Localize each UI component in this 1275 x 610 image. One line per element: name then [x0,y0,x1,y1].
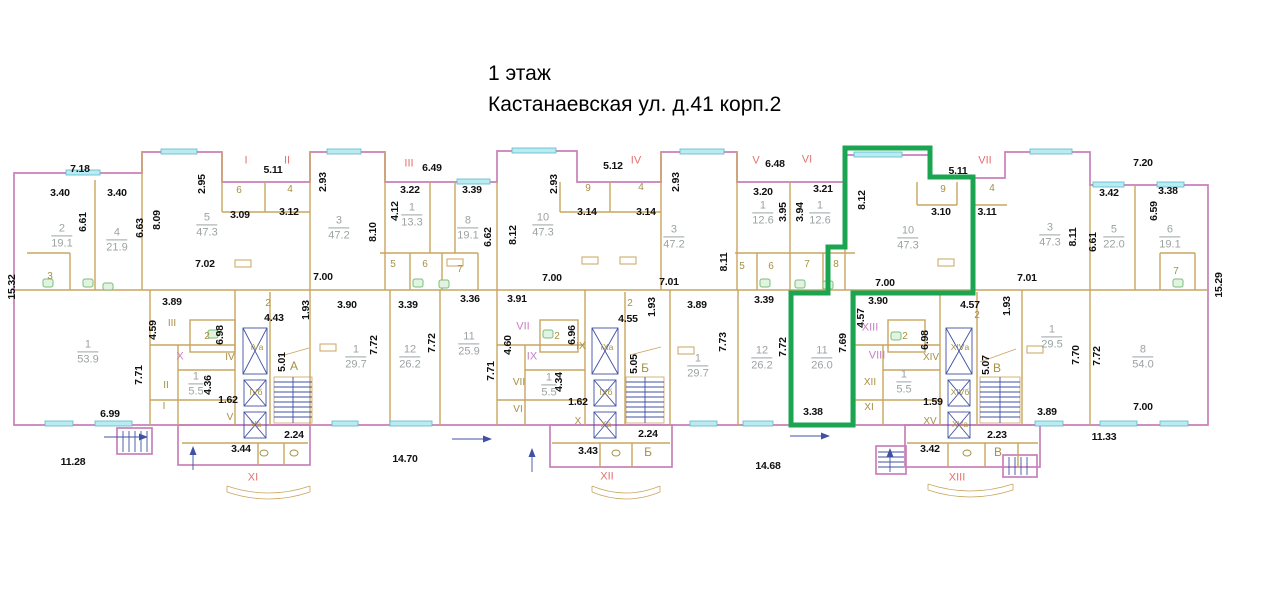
dimension-label: 14.68 [755,461,780,472]
apartment-roman-label: X [176,352,183,363]
dimension-label: 7.00 [875,278,895,289]
dimension-label: 2.93 [549,174,560,194]
room-label: 1126.0 [811,344,832,371]
room-label: 129.5 [1041,323,1062,350]
elevator-shaft-label: IXа [601,343,614,352]
dimension-label: 3.09 [230,210,250,221]
dimension-label: 7.70 [1071,345,1082,365]
elevator-shaft-label: Xа [601,420,611,429]
room-label: 347.2 [328,214,349,241]
dimension-label: 7.18 [70,164,90,175]
dimension-label: 1.93 [647,297,658,317]
apartment-roman-label: XIII [862,323,879,334]
elevator-shaft-label: IVа [251,343,264,352]
small-number-label: 2 [974,311,980,321]
section-roman-label: XIII [949,473,966,484]
dimension-label: 7.73 [718,332,729,352]
dimension-label: 1.59 [923,397,943,408]
dimension-label: 5.01 [277,352,288,372]
dimension-label: 3.90 [337,300,357,311]
section-roman-label: IV [631,156,641,167]
dimension-label: 7.72 [427,333,438,353]
stair-block-letter: В [993,362,1001,374]
dimension-label: 3.95 [778,202,789,222]
room-label: 129.7 [345,343,366,370]
dimension-label: 5.11 [948,166,967,177]
small-number-label: 5 [390,260,396,270]
room-label: 15.5 [541,371,556,398]
dimension-label: 1.93 [1002,296,1013,316]
plan-labels-layer: 7.183.403.406.616.638.092.953.095.113.12… [0,0,1275,610]
small-number-label: 5 [739,262,745,272]
small-number-label: 9 [940,185,946,195]
elevator-shaft-label: Vа [251,420,261,429]
room-label: 1125.9 [458,330,479,357]
dimension-label: 3.14 [636,207,656,218]
dimension-label: 3.90 [868,296,888,307]
dimension-label: 3.40 [107,188,127,199]
small-number-label: 2 [554,332,560,342]
dimension-label: 3.43 [578,446,598,457]
dimension-label: 2.93 [671,172,682,192]
dimension-label: 3.20 [753,187,773,198]
dimension-label: 7.72 [778,337,789,357]
dimension-label: 3.10 [931,207,951,218]
room-label: 619.1 [1159,223,1180,250]
section-roman-label: III [404,159,413,170]
stair-block-letter: А [290,360,298,372]
dimension-label: 5.11 [263,165,282,176]
dimension-label: 7.72 [1092,346,1103,366]
small-number-label: 2 [902,332,908,342]
dimension-label: 7.71 [134,365,145,385]
dimension-label: 4.12 [390,201,401,221]
small-number-label: 7 [457,265,463,275]
dimension-label: 2.95 [197,174,208,194]
small-number-label: 4 [989,184,995,194]
dimension-label: 3.14 [577,207,597,218]
small-number-label: 6 [768,262,774,272]
small-number-label: I [163,402,166,412]
dimension-label: 3.22 [400,185,420,196]
dimension-label: 3.42 [920,444,940,455]
room-label: 112.6 [752,199,773,226]
room-label: 1047.3 [532,211,553,238]
dimension-label: 3.39 [398,300,418,311]
dimension-label: 6.61 [1088,232,1099,252]
dimension-label: 3.38 [1158,186,1178,197]
dimension-label: 7.00 [1133,402,1153,413]
room-label: 1226.2 [399,343,420,370]
dimension-label: 8.11 [719,252,730,271]
dimension-label: 2.23 [987,430,1007,441]
dimension-label: 6.48 [765,159,785,170]
section-roman-label: VI [802,155,812,166]
room-label: 1226.2 [751,344,772,371]
dimension-label: 8.09 [152,210,163,230]
dimension-label: 3.91 [507,294,527,305]
dimension-label: 3.12 [279,207,299,218]
dimension-label: 7.69 [838,333,849,353]
floor-plan-page: 1 этаж Кастанаевская ул. д.41 корп.2 [0,0,1275,610]
stair-block-letter: Б [641,362,649,374]
room-label: 129.7 [687,352,708,379]
room-label: 153.9 [77,338,98,365]
stair-block-letter: Б [644,446,652,458]
room-label: 112.6 [809,199,830,226]
small-number-label: 4 [287,185,293,195]
room-label: 1047.3 [897,224,918,251]
small-number-label: XV [923,417,936,427]
dimension-label: 3.39 [462,185,482,196]
small-number-label: XII [864,378,876,388]
dimension-label: 6.63 [135,218,146,238]
dimension-label: 7.00 [542,273,562,284]
dimension-label: 7.00 [313,272,333,283]
apartment-roman-label: VIII [869,351,886,362]
room-label: 347.3 [1039,221,1060,248]
dimension-label: 4.55 [618,314,638,325]
stair-block-letter: В [994,446,1002,458]
small-number-label: IX [576,342,585,352]
dimension-label: 3.42 [1099,188,1119,199]
dimension-label: 11.33 [1092,432,1117,443]
elevator-shaft-label: XVа [952,420,968,429]
small-number-label: 3 [47,272,53,282]
small-number-label: IV [225,353,234,363]
dimension-label: 3.21 [813,184,833,195]
dimension-label: 5.05 [629,354,640,374]
small-number-label: 6 [422,260,428,270]
small-number-label: 7 [1173,267,1179,277]
small-number-label: 4 [638,183,644,193]
dimension-label: 1.93 [301,300,312,320]
small-number-label: III [168,319,176,329]
dimension-label: 3.89 [162,297,182,308]
dimension-label: 6.59 [1149,201,1160,221]
section-roman-label: XI [248,473,258,484]
dimension-label: 4.57 [960,300,980,311]
small-number-label: 2 [204,332,210,342]
apartment-roman-label: IX [527,352,537,363]
dimension-label: 4.59 [148,320,159,340]
dimension-label: 15.32 [7,274,18,299]
small-number-label: 2 [627,299,633,309]
section-roman-label: V [752,156,759,167]
dimension-label: 7.71 [486,361,497,381]
dimension-label: 1.62 [218,395,238,406]
small-number-label: XI [864,403,873,413]
apartment-roman-label: VII [516,322,529,333]
dimension-label: 7.72 [369,335,380,355]
dimension-label: 6.99 [100,409,120,420]
dimension-label: 8.12 [857,190,868,210]
dimension-label: 3.94 [795,202,806,222]
small-number-label: 8 [833,260,839,270]
room-label: 421.9 [106,226,127,253]
dimension-label: 5.07 [981,355,992,375]
dimension-label: 3.38 [803,407,823,418]
dimension-label: 11.28 [61,457,86,468]
small-number-label: X [575,417,582,427]
room-label: 15.5 [188,370,203,397]
small-number-label: VI [513,405,522,415]
room-label: 522.0 [1103,223,1124,250]
dimension-label: 6.98 [215,325,226,345]
dimension-label: 3.40 [50,188,70,199]
section-roman-label: VII [978,156,991,167]
elevator-shaft-label: IVб [250,388,263,397]
dimension-label: 4.60 [503,335,514,355]
dimension-label: 8.12 [508,225,519,245]
dimension-label: 3.36 [460,294,480,305]
room-label: 819.1 [457,214,478,241]
small-number-label: 9 [585,184,591,194]
small-number-label: 6 [236,186,242,196]
elevator-shaft-label: IXб [600,388,613,397]
dimension-label: 7.02 [195,259,215,270]
dimension-label: 6.62 [483,227,494,247]
dimension-label: 4.43 [264,313,284,324]
small-number-label: II [163,381,169,391]
dimension-label: 3.39 [754,295,774,306]
dimension-label: 3.89 [1037,407,1057,418]
dimension-label: 3.44 [231,444,251,455]
small-number-label: XIV [923,353,939,363]
dimension-label: 6.98 [920,330,931,350]
room-label: 547.3 [196,211,217,238]
small-number-label: VII [513,378,525,388]
dimension-label: 8.11 [1068,227,1079,246]
small-number-label: V [227,413,234,423]
section-roman-label: XII [600,472,613,483]
dimension-label: 8.10 [368,222,379,242]
room-label: 347.2 [663,223,684,250]
dimension-label: 3.11 [977,207,996,218]
dimension-label: 4.36 [203,375,214,395]
dimension-label: 7.01 [1017,273,1037,284]
dimension-label: 5.12 [603,161,623,172]
elevator-shaft-label: XIVа [951,343,969,352]
elevator-shaft-label: XIVб [951,388,970,397]
room-label: 113.3 [401,201,422,228]
room-label: 219.1 [51,222,72,249]
small-number-label: 2 [265,299,271,309]
dimension-label: 2.24 [284,430,304,441]
small-number-label: 7 [804,260,810,270]
dimension-label: 6.61 [78,212,89,232]
dimension-label: 7.01 [659,277,679,288]
room-label: 15.5 [896,368,911,395]
dimension-label: 7.20 [1133,158,1153,169]
dimension-label: 15.29 [1214,272,1225,297]
dimension-label: 2.93 [318,172,329,192]
dimension-label: 3.89 [687,300,707,311]
section-roman-label: I [244,156,247,167]
dimension-label: 14.70 [392,454,417,465]
dimension-label: 6.49 [422,163,442,174]
room-label: 854.0 [1132,343,1153,370]
dimension-label: 2.24 [638,429,658,440]
section-roman-label: II [284,156,290,167]
dimension-label: 1.62 [568,397,588,408]
